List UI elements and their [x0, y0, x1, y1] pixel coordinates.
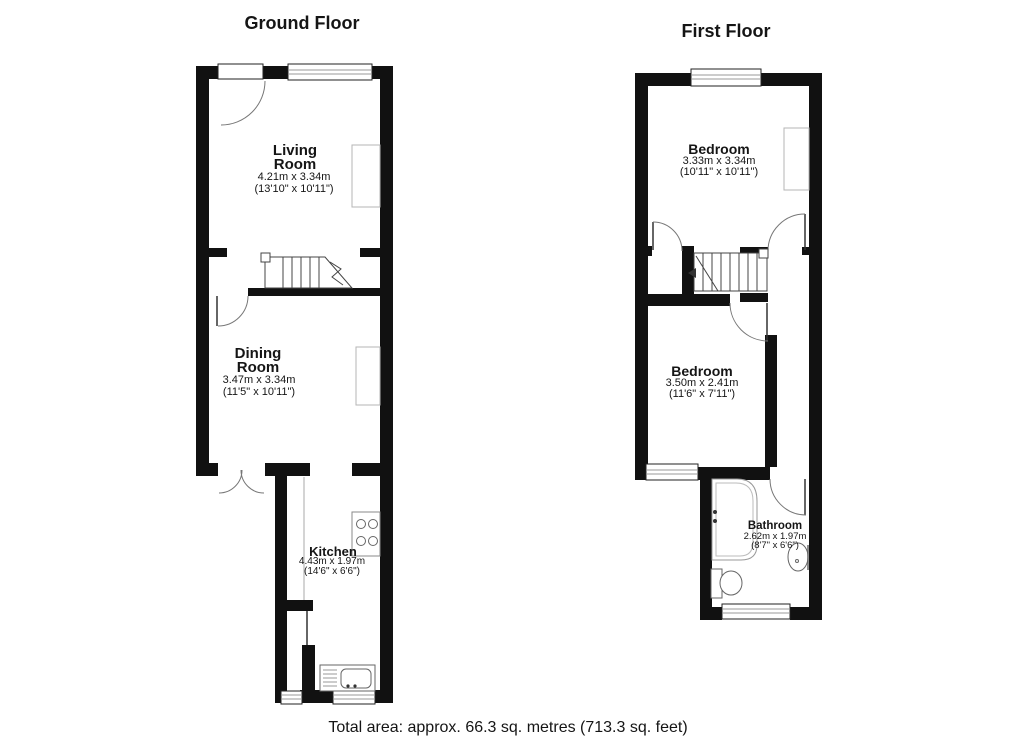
entry-door-panel [218, 64, 263, 79]
wall-segment [300, 690, 334, 703]
wall-segment [275, 467, 287, 703]
living-room-chimney-breast [352, 145, 380, 207]
wall-segment [352, 463, 393, 476]
wall-segment [196, 463, 218, 476]
french-door-right-arc [241, 470, 264, 493]
wall-segment [263, 66, 288, 79]
kitchen-window [333, 691, 375, 704]
bedroom2-window [646, 464, 698, 480]
bathroom-door-arc [770, 479, 806, 515]
bedroom2-imperial: (11'6" x 7'11") [669, 389, 735, 400]
bedroom1-imperial: (10'11" x 10'11") [680, 167, 758, 178]
living-room-metric: 4.21m x 3.34m [258, 172, 331, 183]
first-floor-stairs [688, 249, 768, 291]
wall-segment [265, 463, 310, 476]
french-door-left-arc [219, 470, 242, 493]
wall-segment [302, 645, 315, 691]
dining-room-metric: 3.47m x 3.34m [223, 375, 296, 386]
wall-segment [380, 66, 393, 703]
entry-door-arc [221, 81, 265, 125]
dining-room-chimney-breast [356, 347, 380, 405]
bedroom2-door-arc [730, 303, 768, 341]
bedroom1-wardrobe [784, 128, 809, 190]
ground-floor-stairs [261, 253, 352, 288]
wall-segment [196, 248, 227, 257]
kitchen-imperial: (14'6" x 6'6") [304, 567, 360, 577]
wall-segment [248, 288, 393, 296]
living-room-imperial: (13'10" x 10'11") [254, 184, 333, 195]
ground-floor-title: Ground Floor [245, 13, 360, 34]
wall-segment [635, 246, 652, 256]
bedroom1-door-arc [653, 222, 682, 251]
wall-segment [809, 73, 822, 620]
wall-segment [635, 73, 648, 480]
bathroom-imperial: (8'7" x 6'6") [751, 541, 799, 551]
floorplan-page: Ground Floor First Floor Living Room 4.2… [0, 0, 1024, 744]
stair-outline [265, 257, 352, 288]
sink-icon [320, 665, 375, 691]
lobby-window [281, 691, 302, 704]
dining-room-imperial: (11'5" x 10'11") [223, 387, 295, 398]
ground-floor-fixtures [304, 145, 380, 691]
newel-post [261, 253, 270, 262]
first-floor-title: First Floor [682, 21, 771, 42]
wall-segment [790, 607, 822, 620]
newel-post [759, 249, 768, 258]
landing-door-arc [768, 214, 805, 251]
wall-segment [275, 600, 313, 611]
wall-segment [635, 467, 646, 480]
wall-segment [374, 690, 393, 703]
wall-segment [196, 66, 209, 476]
total-area-text: Total area: approx. 66.3 sq. metres (713… [328, 719, 687, 737]
wall-segment [765, 335, 777, 467]
floorplan-canvas [0, 0, 1024, 744]
bathroom-window [722, 604, 790, 619]
wall-segment [700, 470, 712, 620]
living-room-name: Living Room [257, 144, 333, 172]
wall-segment [700, 607, 722, 620]
dining-room-name: Dining Room [220, 347, 296, 375]
wall-segment [740, 293, 768, 302]
wall-segment [360, 248, 393, 257]
dining-door-arc [218, 296, 248, 326]
living-room-window [288, 64, 372, 80]
toilet-icon [711, 569, 742, 598]
wall-segment [635, 294, 730, 306]
bedroom1-window [691, 69, 761, 86]
